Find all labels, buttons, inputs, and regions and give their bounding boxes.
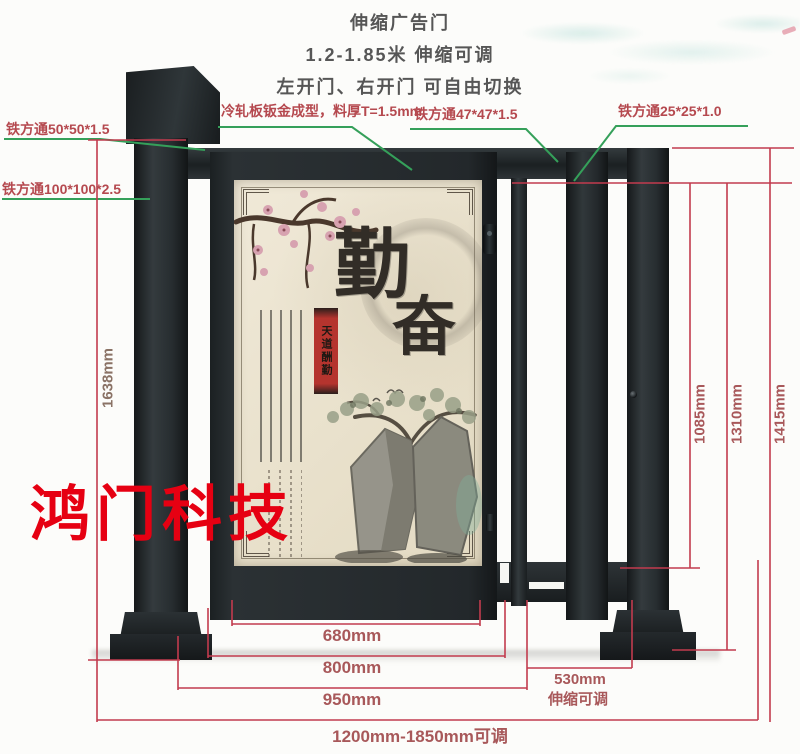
post-bolt [630,391,637,398]
callout-square-tube-50: 铁方通50*50*1.5 [6,119,110,139]
watermark-text: 鸿门科技 [30,466,294,553]
dim-gate-width: 950mm [323,690,382,710]
dim-telescopic-width: 530mm [554,671,606,688]
dim-door-height: 1085mm [692,384,709,444]
dim-left-total-height: 1638mm [100,348,117,408]
callout-square-tube-25: 铁方通25*25*1.0 [618,101,722,121]
dim-frame-height: 1310mm [729,384,746,444]
callout-square-tube-47: 铁方通47*47*1.5 [414,104,518,124]
teal-artifact [490,0,800,95]
landscape-art [289,385,482,563]
right-post [627,148,669,618]
crossbar-slit [500,563,509,583]
telescopic-bar-wide [566,152,608,620]
poster-corner-ornament [447,189,473,215]
poster-corner-ornament [447,531,473,557]
dim-telescopic-note: 伸缩可调 [548,688,608,709]
poster-corner-ornament [243,189,269,215]
right-post-base-lower [600,632,696,660]
door-hinge-screw [486,514,494,531]
dim-panel-width: 800mm [323,658,382,678]
callout-square-tube-100: 铁方通100*100*2.5 [2,179,121,199]
scripture-columns [260,310,310,462]
left-post-base-lower [110,634,212,660]
dim-total-width: 1200mm-1850mm可调 [332,722,508,747]
dim-door-width: 680mm [323,626,382,646]
door-lock [483,224,496,254]
telescopic-bar-thin [511,178,527,606]
dim-post-height: 1415mm [772,384,789,444]
seal-banner-text: 天道酬勤 [318,325,334,377]
crossbar-slit [529,582,564,589]
callout-cold-rolled-plate: 冷轧板钣金成型，料厚T=1.5mm [221,101,422,121]
calligraphy-char-fen: 奋 [392,296,456,360]
product-diagram-canvas: 伸缩广告门 1.2-1.85米 伸缩可调 左开门、右开门 可自由切换 [0,0,800,754]
seal-banner: 天道酬勤 [314,308,338,394]
